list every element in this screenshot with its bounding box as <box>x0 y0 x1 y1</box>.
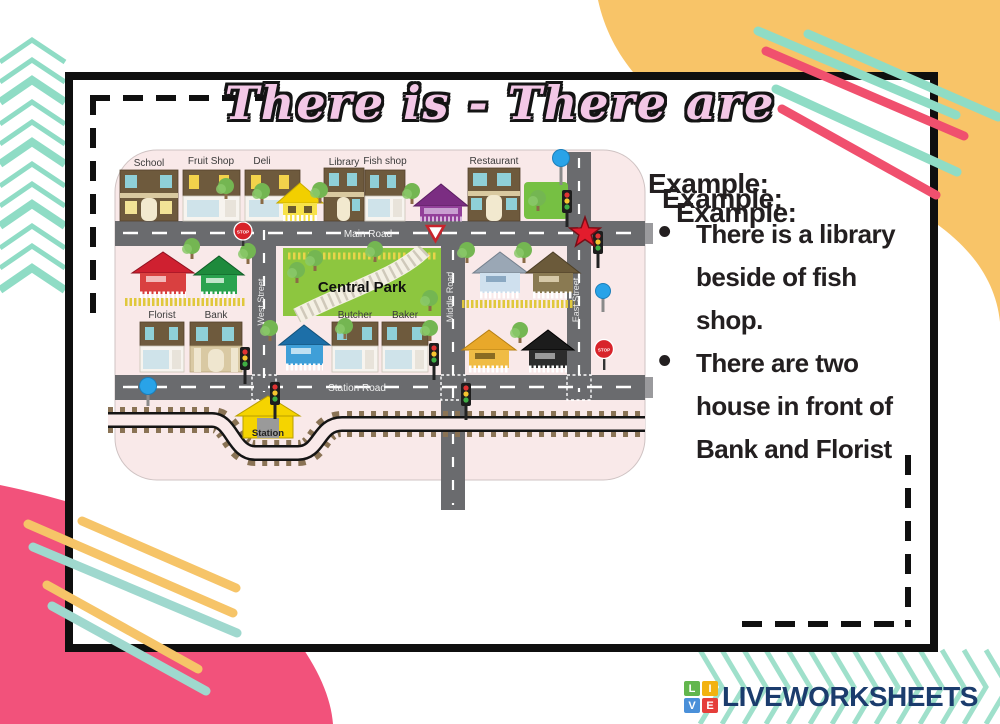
brand-text: LIVEWORKSHEETS <box>722 681 978 713</box>
logo-letter-i: I <box>702 681 718 696</box>
chevron-pattern-left <box>0 40 65 290</box>
example-list: There is a library beside of fish shop. … <box>654 213 904 471</box>
liveworksheets-logo[interactable]: L I V E LIVEWORKSHEETS <box>684 681 978 713</box>
logo-letter-e: E <box>702 698 718 713</box>
example-item: There is a library beside of fish shop. <box>654 213 904 342</box>
logo-letter-l: L <box>684 681 700 696</box>
logo-letter-v: V <box>684 698 700 713</box>
dashed-corner-right <box>905 455 911 627</box>
liveworksheets-logo-icon: L I V E <box>684 681 718 713</box>
page-title: There is - There are <box>70 76 930 130</box>
example-item: There are two house in front of Bank and… <box>654 342 904 471</box>
dashed-corner-bottom <box>742 621 911 627</box>
